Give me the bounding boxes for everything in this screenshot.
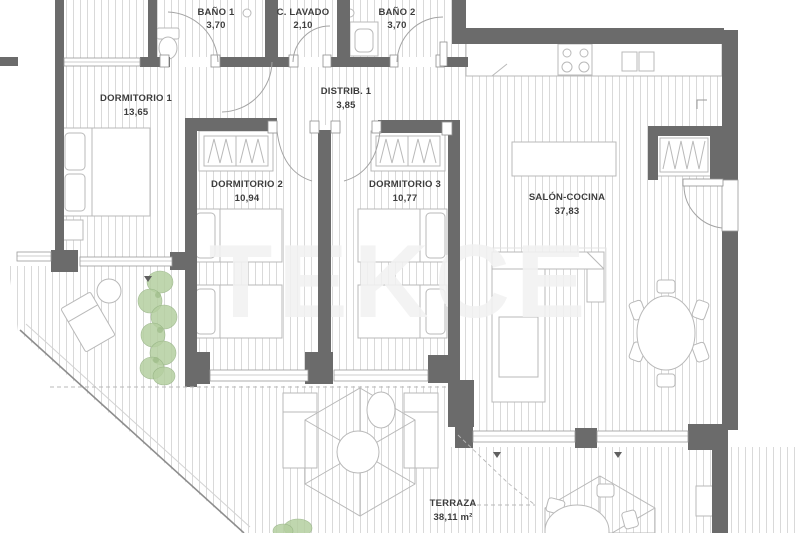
room-label-lavado: C. LAVADO	[277, 7, 330, 18]
kitchen-island	[512, 142, 616, 176]
watermark: TEKCE	[209, 224, 591, 340]
stove-icon	[558, 44, 592, 75]
room-label-bano2: BAÑO 2	[378, 7, 415, 18]
room-area-bano2: 3,70	[387, 20, 406, 31]
room-label-salon-cocina: SALÓN-COCINA	[529, 191, 605, 203]
floor-plan-page: TEKCE	[0, 0, 800, 533]
room-area-dormitorio2: 10,94	[235, 193, 260, 204]
sliding-door-window	[473, 431, 575, 442]
entrance-opening	[722, 180, 738, 231]
window	[64, 58, 140, 66]
room-label-dormitorio2: DORMITORIO 2	[211, 179, 283, 190]
entrance-door-leaf	[683, 179, 723, 186]
toilet-icon	[157, 28, 179, 59]
room-label-bano1: BAÑO 1	[197, 7, 235, 18]
wardrobe-icon	[371, 131, 445, 171]
room-label-distribuidor: DISTRIB. 1	[321, 86, 372, 97]
room-area-dormitorio1: 13,65	[124, 107, 149, 118]
room-area-dormitorio3: 10,77	[393, 193, 418, 204]
room-area-lavado: 2,10	[293, 20, 312, 31]
room-area-terraza: 38,11 m²	[433, 512, 472, 523]
room-label-terraza: TERRAZA	[430, 498, 477, 509]
room-label-dormitorio3: DORMITORIO 3	[369, 179, 441, 190]
floor-plan: TEKCE	[0, 0, 800, 533]
window	[334, 370, 428, 381]
wardrobe-icon	[199, 131, 273, 171]
washing-machine-icon	[350, 22, 378, 56]
window	[210, 370, 308, 381]
room-area-distribuidor: 3,85	[336, 100, 356, 111]
fixture-dot-icon	[243, 9, 251, 17]
window	[80, 257, 172, 266]
kitchen-counter	[466, 42, 722, 76]
wardrobe-icon	[656, 134, 712, 176]
sliding-door-window	[597, 431, 688, 442]
room-area-bano1: 3,70	[206, 20, 225, 31]
room-label-dormitorio1: DORMITORIO 1	[100, 93, 172, 104]
room-area-salon-cocina: 37,83	[555, 206, 580, 217]
window	[17, 252, 51, 261]
terrace-table-icon	[97, 279, 121, 303]
